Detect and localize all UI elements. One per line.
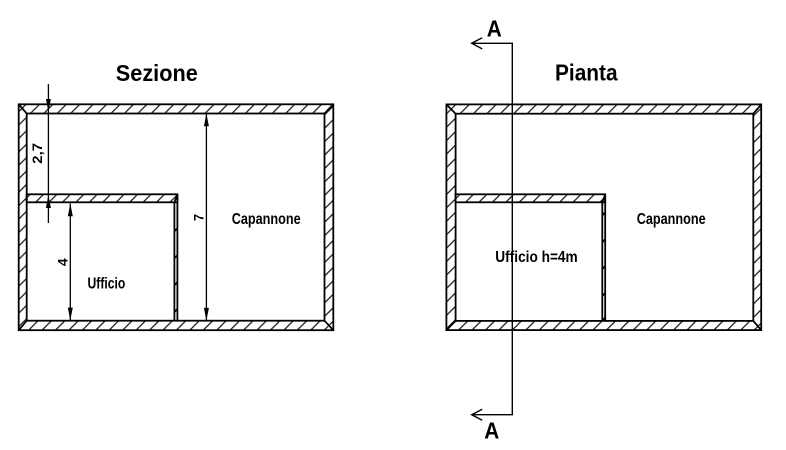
svg-text:Capannone: Capannone (637, 211, 706, 228)
svg-text:Pianta: Pianta (555, 59, 619, 85)
svg-text:7: 7 (192, 214, 207, 221)
svg-text:4: 4 (56, 258, 71, 266)
svg-text:Ufficio: Ufficio (88, 276, 126, 293)
svg-text:2,7: 2,7 (30, 143, 45, 164)
svg-text:Sezione: Sezione (116, 60, 198, 86)
svg-text:Ufficio h=4m: Ufficio h=4m (495, 249, 577, 266)
svg-text:Capannone: Capannone (232, 211, 301, 228)
svg-text:A: A (487, 16, 502, 42)
svg-text:A: A (484, 418, 499, 444)
